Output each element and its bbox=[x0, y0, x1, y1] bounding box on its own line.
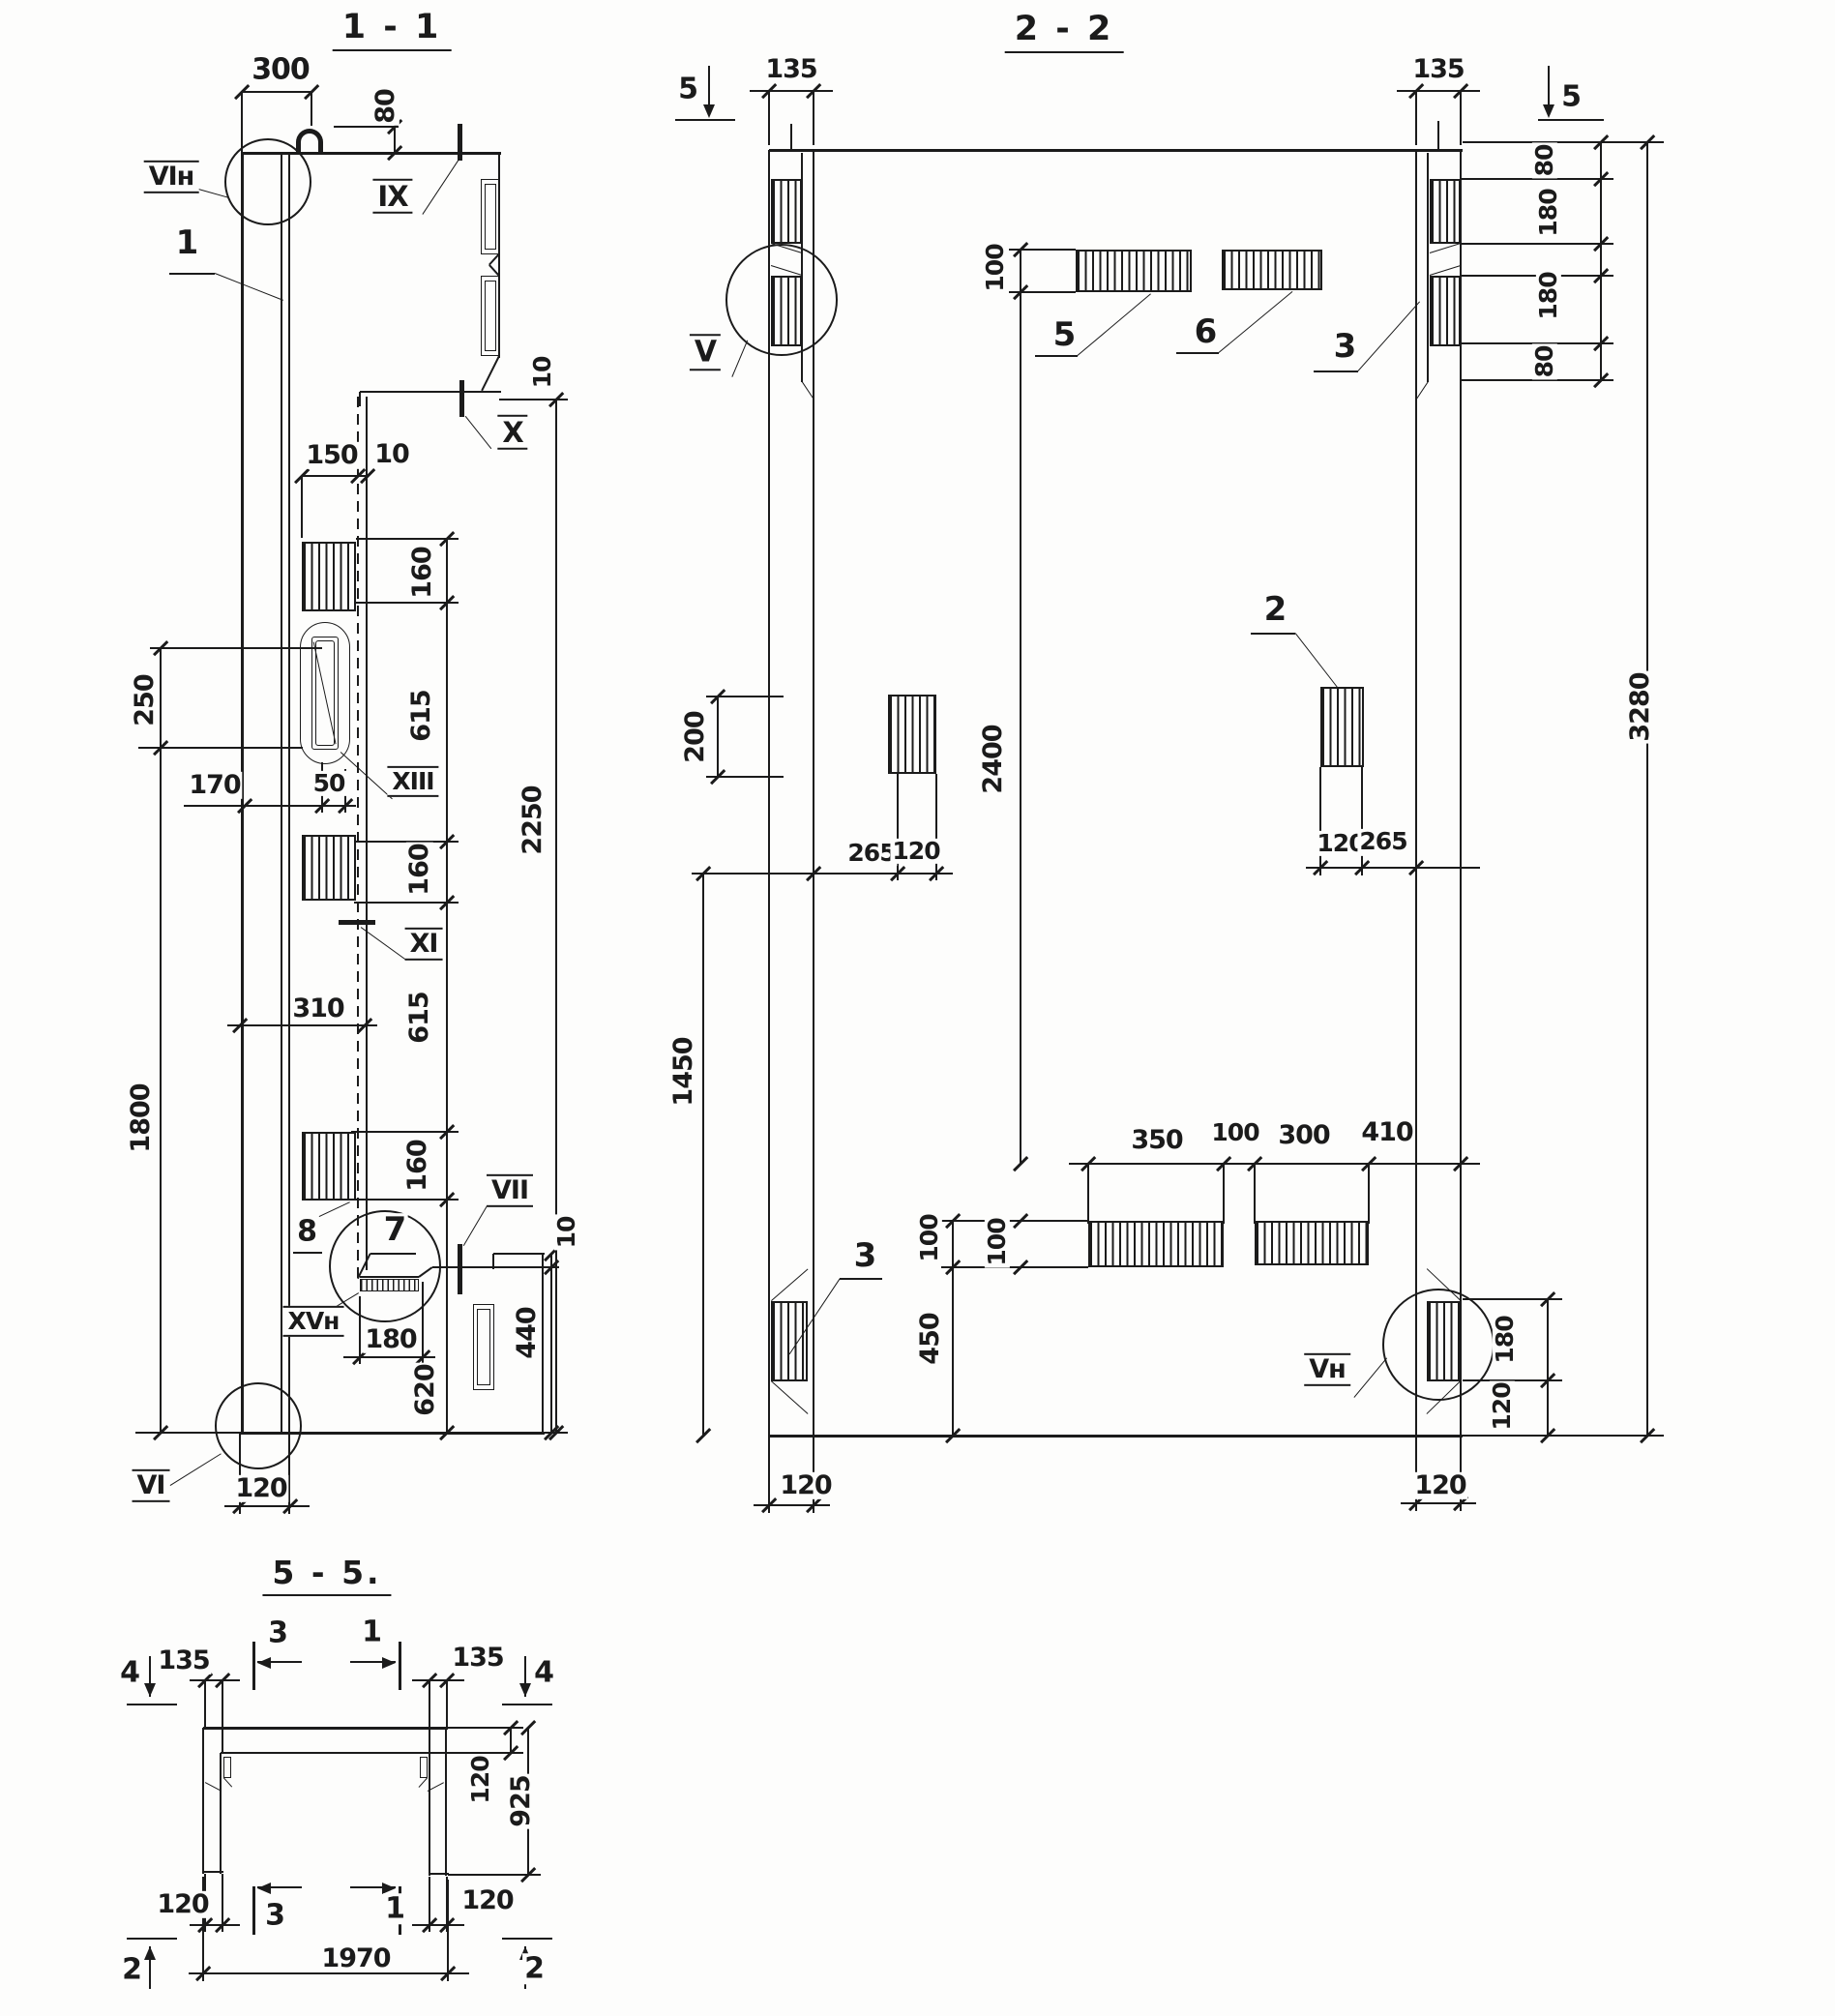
diagonal-line bbox=[223, 1778, 233, 1789]
marker-5-tr: 5 bbox=[1559, 81, 1583, 112]
line-horizontal bbox=[502, 1938, 552, 1941]
node-vi-n-top: VIн bbox=[144, 161, 199, 193]
line-horizontal bbox=[351, 1131, 459, 1132]
node-x: X bbox=[497, 415, 527, 450]
line-horizontal bbox=[334, 126, 399, 127]
line-vertical bbox=[550, 1254, 551, 1433]
line-vertical bbox=[399, 1642, 401, 1690]
dim-180-br: 180 bbox=[1493, 1314, 1518, 1365]
line-vertical bbox=[447, 1880, 448, 1981]
line-vertical bbox=[281, 153, 281, 1433]
dim-120-tr55: 120 bbox=[468, 1754, 493, 1805]
hatch-area bbox=[771, 179, 802, 244]
line-horizontal bbox=[412, 1679, 464, 1680]
node-xiii: XIII bbox=[387, 766, 438, 797]
marker-4-l: 4 bbox=[118, 1657, 141, 1688]
dim-10-150: 10 bbox=[372, 441, 411, 468]
node-xv-n: XVн bbox=[283, 1306, 344, 1337]
diagonal-line bbox=[1353, 1358, 1387, 1399]
line-vertical bbox=[311, 92, 311, 126]
hatch-area bbox=[1222, 250, 1322, 290]
dim-250: 250 bbox=[132, 672, 159, 727]
diagonal-line bbox=[422, 161, 459, 216]
line-horizontal bbox=[1461, 379, 1613, 380]
hidden-edge-dashed-line bbox=[357, 397, 359, 1279]
line-vertical bbox=[202, 1728, 205, 1874]
dim-120-ml: 120 bbox=[890, 839, 941, 864]
line-horizontal bbox=[840, 1278, 882, 1279]
diagonal-line bbox=[731, 341, 748, 378]
section-arrow-icon bbox=[519, 1683, 531, 1697]
hatch-area bbox=[302, 542, 356, 611]
dim-3280: 3280 bbox=[1627, 670, 1654, 743]
section-arrow-icon bbox=[144, 1683, 156, 1697]
line-horizontal bbox=[190, 1924, 240, 1925]
line-vertical bbox=[542, 1254, 544, 1433]
dim-135-r55: 135 bbox=[450, 1645, 505, 1672]
slot-outline bbox=[485, 281, 496, 351]
hatch-area bbox=[771, 1301, 808, 1381]
line-horizontal bbox=[769, 1435, 1463, 1438]
dim-100-top: 100 bbox=[983, 242, 1008, 293]
section-arrow-icon bbox=[144, 1946, 156, 1960]
line-vertical bbox=[222, 1680, 222, 1753]
dim-1800: 1800 bbox=[128, 1082, 155, 1154]
detail-circle bbox=[215, 1382, 302, 1469]
marker-3-top: 3 bbox=[266, 1617, 289, 1648]
dim-100-b1: 100 bbox=[917, 1212, 942, 1263]
dim-200: 200 bbox=[682, 709, 709, 764]
section-2-2-title: 2 - 2 bbox=[1005, 10, 1124, 53]
node-xi: XI bbox=[405, 928, 443, 961]
line-vertical bbox=[301, 476, 302, 538]
dim-410: 410 bbox=[1359, 1119, 1414, 1146]
line-horizontal bbox=[203, 1727, 448, 1730]
marker-3-bot: 3 bbox=[263, 1900, 286, 1931]
line-horizontal bbox=[169, 273, 215, 274]
line-vertical bbox=[790, 124, 792, 150]
line-vertical bbox=[1361, 767, 1362, 875]
line-vertical bbox=[1254, 1164, 1255, 1224]
slot-outline bbox=[485, 184, 496, 250]
line-horizontal bbox=[941, 1266, 1088, 1267]
item-6: 6 bbox=[1193, 315, 1219, 350]
slot-outline bbox=[223, 1757, 231, 1778]
dim-160-3: 160 bbox=[404, 1138, 431, 1193]
diagonal-line bbox=[215, 273, 284, 301]
line-vertical bbox=[1547, 1299, 1548, 1436]
item-8: 8 bbox=[295, 1216, 318, 1247]
line-vertical bbox=[1319, 767, 1320, 875]
line-vertical bbox=[1415, 150, 1417, 1436]
line-vertical bbox=[458, 1244, 462, 1294]
line-horizontal bbox=[360, 391, 501, 393]
dim-120-rrib: 120 bbox=[1412, 1472, 1467, 1499]
item-2: 2 bbox=[1262, 593, 1288, 628]
line-horizontal bbox=[493, 1253, 545, 1255]
marker-1-bot: 1 bbox=[383, 1893, 406, 1924]
slot-outline bbox=[420, 1757, 428, 1778]
line-horizontal bbox=[412, 1924, 464, 1925]
dim-120-lrib: 120 bbox=[778, 1472, 833, 1499]
line-horizontal bbox=[1306, 867, 1480, 868]
diagonal-line bbox=[1219, 291, 1293, 353]
dim-180-11: 180 bbox=[363, 1326, 418, 1353]
dim-300-22: 300 bbox=[1276, 1122, 1331, 1149]
line-vertical bbox=[359, 392, 361, 406]
line-horizontal bbox=[127, 1938, 177, 1941]
drawing-canvas: 1 - 1 2 - 2 5 - 5. 30080VIн1IXX101501016… bbox=[0, 0, 1835, 2016]
dim-300: 300 bbox=[250, 54, 311, 85]
line-horizontal bbox=[1251, 633, 1295, 634]
line-horizontal bbox=[502, 1704, 552, 1706]
dim-135-tl: 135 bbox=[763, 56, 818, 83]
dim-160-1: 160 bbox=[409, 545, 436, 600]
line-horizontal bbox=[227, 1024, 377, 1025]
dim-120-br55: 120 bbox=[459, 1887, 515, 1914]
dim-170: 170 bbox=[187, 772, 242, 799]
line-horizontal bbox=[692, 873, 953, 874]
line-vertical bbox=[429, 1680, 429, 1753]
line-vertical bbox=[220, 1753, 222, 1874]
marker-1-top: 1 bbox=[360, 1616, 383, 1647]
line-horizontal bbox=[1069, 1163, 1480, 1164]
section-5-5-title: 5 - 5. bbox=[262, 1554, 391, 1596]
detail-circle bbox=[1382, 1289, 1495, 1401]
line-vertical bbox=[446, 1680, 447, 1728]
marker-2-l: 2 bbox=[120, 1954, 143, 1985]
dim-440: 440 bbox=[514, 1305, 541, 1360]
line-vertical bbox=[1646, 142, 1647, 1436]
line-horizontal bbox=[1463, 141, 1664, 142]
line-horizontal bbox=[190, 1679, 240, 1680]
dim-100-bot: 100 bbox=[1209, 1120, 1260, 1145]
dim-80-r2: 80 bbox=[1532, 344, 1557, 380]
diagonal-line bbox=[170, 1453, 222, 1486]
dim-925: 925 bbox=[508, 1773, 535, 1828]
node-vii: VII bbox=[487, 1174, 533, 1207]
line-vertical bbox=[1087, 1164, 1088, 1224]
detail-circle bbox=[725, 244, 838, 356]
dim-615-2: 615 bbox=[406, 990, 433, 1045]
dim-100-b2: 100 bbox=[985, 1216, 1010, 1267]
line-vertical bbox=[492, 1254, 494, 1269]
line-horizontal bbox=[127, 1704, 177, 1706]
line-horizontal bbox=[675, 119, 735, 122]
diagonal-line bbox=[481, 356, 500, 392]
line-vertical bbox=[1415, 91, 1416, 145]
line-horizontal bbox=[1035, 355, 1078, 356]
line-vertical bbox=[1223, 1164, 1224, 1224]
line-vertical bbox=[458, 124, 462, 161]
line-vertical bbox=[1437, 121, 1439, 150]
item-1: 1 bbox=[174, 226, 200, 261]
item-7: 7 bbox=[382, 1213, 408, 1248]
line-horizontal bbox=[750, 90, 833, 91]
dim-80-top: 80 bbox=[372, 87, 400, 126]
line-vertical bbox=[813, 91, 814, 145]
line-vertical bbox=[1460, 91, 1461, 145]
line-vertical bbox=[459, 380, 464, 417]
hatch-area bbox=[1320, 687, 1364, 767]
node-v-n: Vн bbox=[1304, 1353, 1350, 1386]
line-horizontal bbox=[769, 149, 1463, 152]
line-horizontal bbox=[293, 1252, 322, 1253]
dim-135-tr: 135 bbox=[1410, 56, 1465, 83]
diagonal-line bbox=[1357, 302, 1420, 372]
dim-2250: 2250 bbox=[519, 784, 547, 856]
dim-450: 450 bbox=[917, 1311, 944, 1366]
dim-120-bl55: 120 bbox=[155, 1891, 210, 1918]
line-horizontal bbox=[1463, 1435, 1664, 1436]
line-vertical bbox=[1020, 250, 1021, 1164]
line-horizontal bbox=[1538, 119, 1604, 122]
dim-310: 310 bbox=[290, 995, 345, 1023]
dim-10-x: 10 bbox=[530, 355, 555, 391]
diagonal-line bbox=[319, 1201, 351, 1217]
diagonal-line bbox=[464, 416, 491, 450]
diagonal-line bbox=[1294, 634, 1339, 691]
diagonal-line bbox=[1415, 382, 1428, 400]
marker-2-r: 2 bbox=[522, 1953, 546, 1984]
line-horizontal bbox=[351, 1199, 459, 1200]
dim-620: 620 bbox=[412, 1362, 439, 1417]
section-arrow-icon bbox=[382, 1657, 396, 1669]
dim-150: 150 bbox=[304, 442, 359, 469]
line-horizontal bbox=[1314, 371, 1358, 371]
diagonal-line bbox=[1430, 265, 1461, 276]
line-horizontal bbox=[1461, 178, 1613, 179]
item-5: 5 bbox=[1051, 318, 1078, 353]
line-horizontal bbox=[184, 805, 356, 806]
node-vi-bot: VI bbox=[133, 1469, 170, 1502]
line-vertical bbox=[1427, 153, 1428, 382]
diagonal-line bbox=[419, 1778, 429, 1789]
dim-350: 350 bbox=[1129, 1127, 1184, 1154]
dim-1450: 1450 bbox=[670, 1035, 697, 1108]
hatch-area bbox=[1430, 276, 1461, 346]
dim-120-br22: 120 bbox=[1490, 1380, 1515, 1432]
line-vertical bbox=[446, 539, 447, 1433]
line-vertical bbox=[288, 153, 289, 1433]
line-vertical bbox=[241, 92, 242, 153]
item-3-bl: 3 bbox=[852, 1239, 878, 1274]
slot-outline bbox=[477, 1309, 490, 1385]
hatch-area bbox=[1088, 1221, 1224, 1267]
dim-2400: 2400 bbox=[980, 723, 1007, 795]
line-horizontal bbox=[1461, 243, 1613, 244]
line-vertical bbox=[366, 397, 367, 1270]
line-vertical bbox=[702, 874, 703, 1436]
diagonal-line bbox=[771, 1380, 809, 1414]
line-horizontal bbox=[242, 91, 311, 92]
marker-5-tl: 5 bbox=[676, 74, 699, 104]
line-vertical bbox=[252, 1642, 255, 1690]
dim-80-r1: 80 bbox=[1532, 143, 1557, 179]
line-vertical bbox=[555, 400, 556, 1433]
diagonal-line bbox=[462, 1203, 488, 1247]
line-vertical bbox=[445, 1728, 448, 1876]
line-horizontal bbox=[432, 1266, 493, 1268]
line-vertical bbox=[160, 648, 161, 1433]
hatch-area bbox=[1076, 250, 1192, 292]
dim-615-1: 615 bbox=[408, 688, 435, 743]
line-vertical bbox=[717, 697, 718, 777]
dim-1970: 1970 bbox=[319, 1945, 392, 1972]
line-vertical bbox=[204, 1680, 205, 1728]
line-horizontal bbox=[150, 647, 322, 648]
node-ix: IX bbox=[372, 179, 412, 214]
dim-180-r2: 180 bbox=[1536, 270, 1561, 321]
diagonal-line bbox=[1078, 293, 1152, 356]
line-horizontal bbox=[1397, 90, 1480, 91]
dim-50: 50 bbox=[311, 771, 347, 796]
section-1-1-title: 1 - 1 bbox=[333, 8, 452, 51]
diagonal-line bbox=[771, 1268, 809, 1301]
section-arrow-icon bbox=[1543, 104, 1554, 118]
line-horizontal bbox=[221, 1752, 430, 1754]
dim-160-2: 160 bbox=[406, 842, 433, 897]
line-horizontal bbox=[1176, 352, 1219, 353]
line-vertical bbox=[768, 91, 769, 145]
section-arrow-icon bbox=[257, 1657, 271, 1669]
hatch-area bbox=[302, 835, 356, 901]
dim-135-l55: 135 bbox=[156, 1647, 211, 1675]
line-vertical bbox=[952, 1221, 953, 1436]
lifting-hook-icon bbox=[296, 129, 323, 155]
diagonal-line bbox=[361, 927, 407, 961]
dim-265-r: 265 bbox=[1357, 829, 1408, 854]
item-3-tr: 3 bbox=[1332, 330, 1358, 365]
line-vertical bbox=[252, 1886, 255, 1935]
section-arrow-icon bbox=[703, 104, 715, 118]
dim-10-vii: 10 bbox=[554, 1215, 579, 1251]
line-vertical bbox=[1368, 1164, 1369, 1224]
node-v: V bbox=[690, 334, 721, 371]
dim-120-11: 120 bbox=[233, 1475, 288, 1502]
line-horizontal bbox=[941, 1220, 1088, 1221]
hatch-area bbox=[888, 695, 936, 774]
hatch-area bbox=[1430, 179, 1461, 244]
slot-outline bbox=[315, 640, 335, 746]
line-vertical bbox=[429, 1753, 430, 1876]
marker-4-r: 4 bbox=[532, 1657, 555, 1688]
line-horizontal bbox=[138, 747, 303, 748]
diagonal-line bbox=[1430, 243, 1461, 253]
dim-180-r1: 180 bbox=[1536, 187, 1561, 238]
hatch-area bbox=[302, 1132, 356, 1201]
line-horizontal bbox=[1401, 1502, 1476, 1503]
hatch-area bbox=[1255, 1221, 1369, 1265]
section-arrow-icon bbox=[257, 1883, 271, 1894]
